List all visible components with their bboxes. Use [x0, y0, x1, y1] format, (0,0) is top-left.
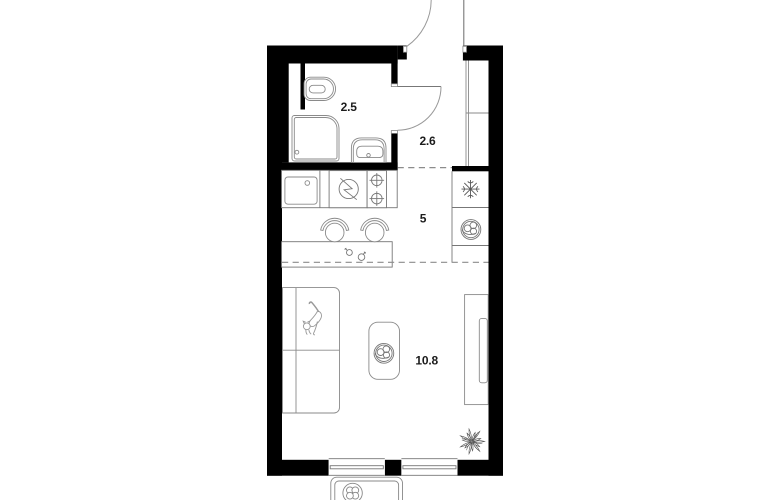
svg-text:10.8: 10.8	[415, 353, 438, 367]
svg-text:5: 5	[420, 211, 427, 225]
svg-text:2.6: 2.6	[419, 134, 436, 148]
svg-text:2.5: 2.5	[341, 100, 358, 114]
